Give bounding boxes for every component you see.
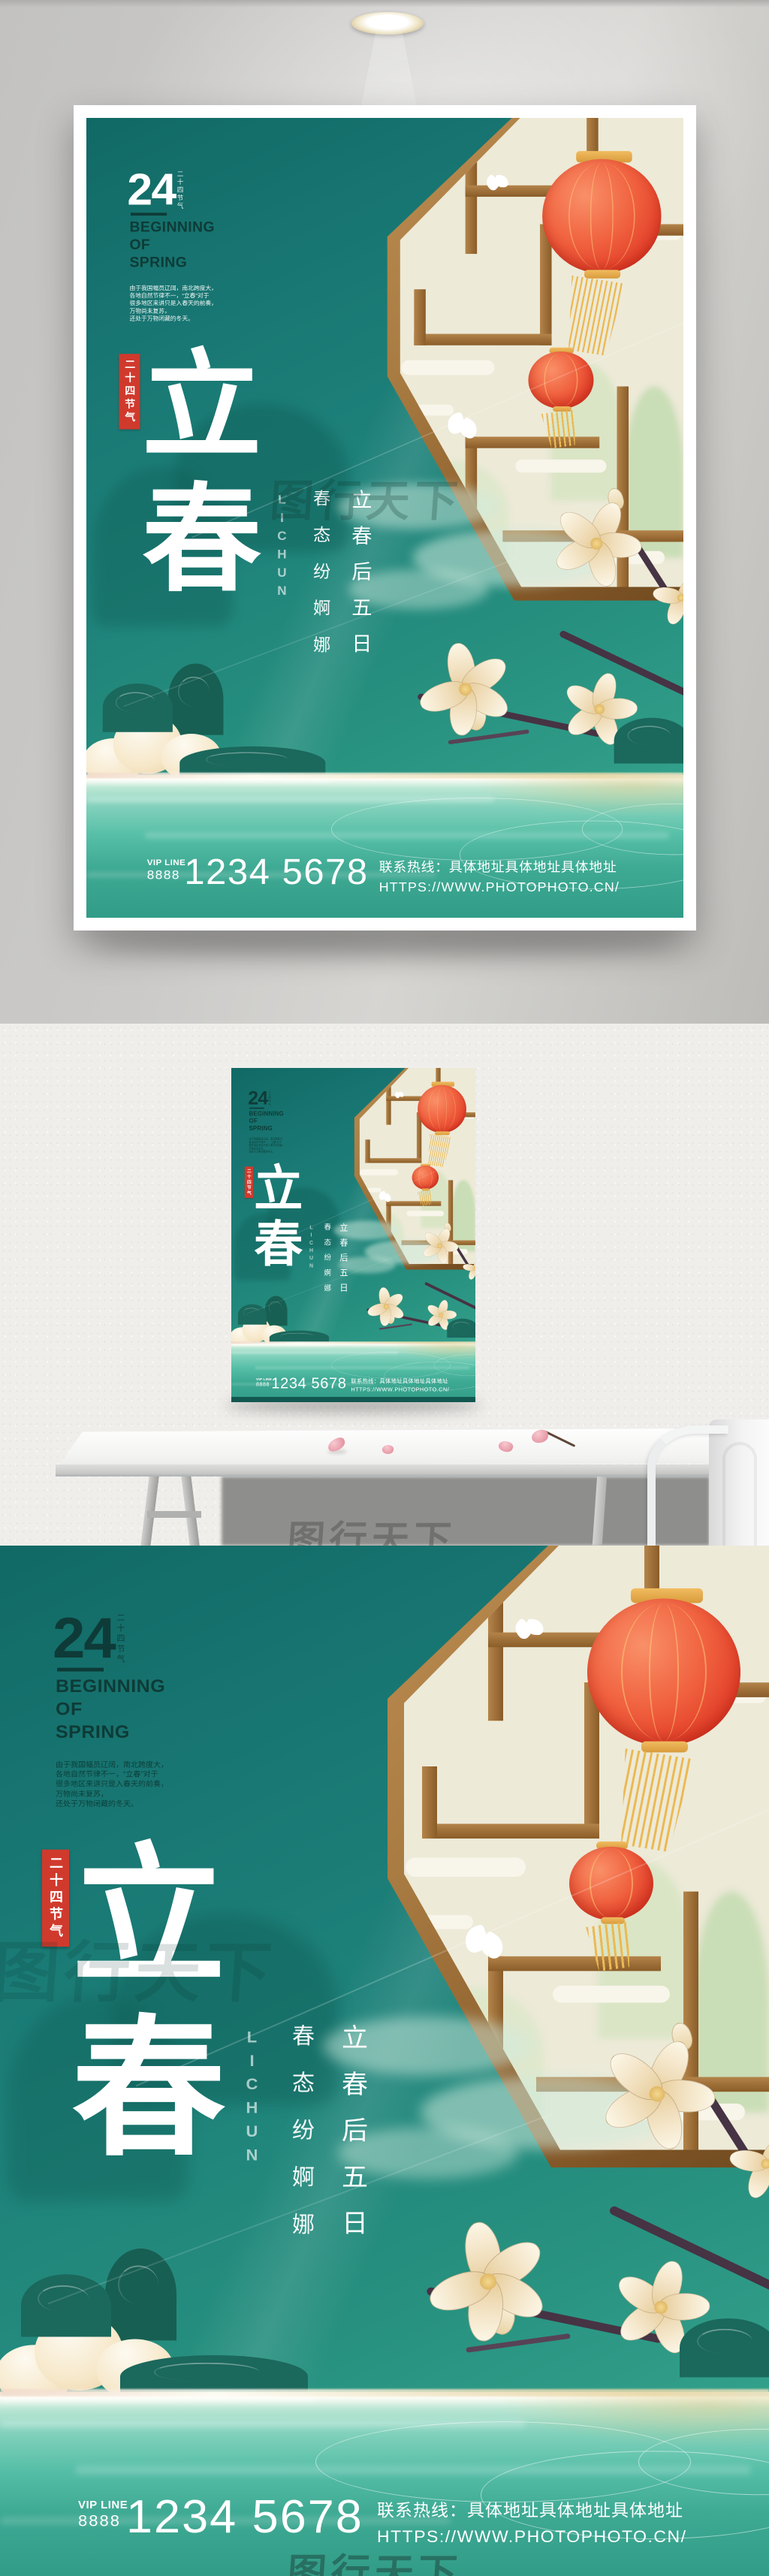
window-cloud [553,1986,670,2003]
shoreline [231,1341,475,1344]
phone-number: 1234 5678 [126,2490,363,2544]
vip-line-block: VIP LINE 8888 [78,2499,128,2529]
lattice-bar [422,1823,599,1838]
title-char-chun: 春 [140,484,264,596]
lichun-pinyin: LICHUN [308,1224,314,1270]
butterfly-icon [445,410,481,442]
lichun-poster: 24 二十四节气 BEGINNING OF SPRING 由于我国幅员辽阔，南北… [231,1068,475,1402]
watermark: 图行天下 [0,1920,279,2015]
lattice-bar [365,1158,421,1163]
window-cloud [360,1169,398,1175]
description-paragraph: 由于我国幅员辽阔，南北跨度大， 各地自然节律不一，“立春”对于 很多地区来讲只是… [249,1138,285,1154]
verse-column-b: 立春后五日 [337,1223,349,1299]
description-paragraph: 由于我国幅员辽阔，南北跨度大， 各地自然节律不一，“立春”对于 很多地区来讲只是… [129,285,216,322]
number-24: 24 [248,1088,267,1107]
white-chair [643,1415,769,1546]
vip-line-number: 8888 [256,1381,272,1387]
contact-block: 联系热线：具体地址具体地址具体地址 HTTPS://WWW.PHOTOPHOTO… [379,856,620,895]
number-24-side-label: 二十四节气 [267,1090,271,1106]
verse-column-b: 立春后五日 [333,2024,372,2256]
stock-preview-image: 24 二十四节气 BEGINNING OF SPRING 由于我国幅员辽阔，南北… [0,0,769,2576]
lichun-poster: 24 二十四节气 BEGINNING OF SPRING 由于我国幅员辽阔，南北… [0,1546,769,2576]
desk-front-edge [56,1464,728,1477]
water [86,775,683,918]
number-24: 24 [127,167,175,211]
vip-line-number: 8888 [147,867,185,881]
lichun-pinyin: LICHUN [242,2028,261,2169]
solar-terms-badge-text: 二十四节气 [122,359,137,424]
solar-terms-badge-text: 二十四节气 [246,1169,252,1196]
mini-poster-bottom-edge [231,1397,475,1402]
lattice-bar [414,334,551,345]
title-char-li: 立 [253,1166,303,1212]
watermark: 图行天下 [285,2541,463,2576]
title-char-chun: 春 [69,2018,228,2161]
description-paragraph: 由于我国幅员辽阔，南北跨度大， 各地自然节律不一，“立春”对于 很多地区来讲只是… [56,1760,168,1809]
vip-line-number: 8888 [78,2511,128,2529]
window-cloud [401,360,494,376]
magnolia-flower [410,2205,567,2358]
red-lantern-large [587,1588,745,1854]
hill [614,718,683,764]
title-english: BEGINNING OF SPRING [56,1675,165,1743]
hotline-address: 联系热线：具体地址具体地址具体地址 [379,856,620,876]
hill [680,2318,769,2377]
desk-leg-crossbar [147,1511,201,1518]
contact-block: 联系热线：具体地址具体地址具体地址 HTTPS://WWW.PHOTOPHOTO… [351,1377,449,1393]
magnolia-flower [361,1282,411,1332]
magnolia-flower [405,629,526,749]
watermark: 图行天下 [268,466,465,529]
shoreline [86,773,683,779]
vip-line-label: VIP LINE [147,858,185,868]
vip-line-block: VIP LINE 8888 [256,1377,272,1387]
shoreline [0,2389,769,2397]
number-24-side-label: 二十四节气 [175,170,184,210]
chair-frame-tube [647,1425,728,1546]
vip-line-label: VIP LINE [78,2499,128,2511]
lattice-bar [365,1139,369,1163]
ceiling-spotlight [351,12,424,35]
solar-terms-badge: 二十四节气 [245,1166,253,1198]
red-lantern-small [527,348,597,451]
website-url: HTTPS://WWW.PHOTOPHOTO.CN/ [351,1386,449,1393]
hotline-address: 联系热线：具体地址具体地址具体地址 [351,1377,449,1385]
hill [447,1319,475,1338]
phone-number: 1234 5678 [184,852,368,893]
ceiling-edge [0,0,769,8]
verse-column-a: 春态纷婀娜 [321,1223,332,1300]
vip-line-block: VIP LINE 8888 [147,858,185,882]
lattice-bar [414,289,426,345]
phone-number: 1234 5678 [271,1374,346,1392]
window-cloud [406,1858,526,1877]
butterfly-icon [461,1922,508,1964]
website-url: HTTPS://WWW.PHOTOPHOTO.CN/ [379,879,620,895]
verse-column-a: 春态纷婀娜 [284,2024,317,2260]
title-char-chun: 春 [253,1221,303,1268]
number-24-side-label: 二十四节气 [114,1613,126,1665]
title-char-li: 立 [140,351,264,462]
poster-mount-full: 24 二十四节气 BEGINNING OF SPRING 由于我国幅员辽阔，南北… [0,1546,769,2576]
lattice-bar [422,1766,437,1838]
window-cloud [407,1211,445,1216]
hotline-address: 联系热线：具体地址具体地址具体地址 [377,2496,687,2521]
water [231,1343,475,1402]
poster-mount-mini: 24 二十四节气 BEGINNING OF SPRING 由于我国幅员辽阔，南北… [231,1068,475,1402]
red-lantern-large [542,151,665,357]
red-lantern-large [418,1081,468,1167]
divider [57,1668,104,1672]
butterfly-icon [378,1190,393,1204]
window-cloud [515,460,606,472]
solar-terms-badge: 二十四节气 [119,354,140,429]
title-english: BEGINNING OF SPRING [249,1110,283,1133]
number-24: 24 [53,1609,115,1666]
title-english: BEGINNING OF SPRING [129,219,214,272]
red-lantern-small [568,1842,658,1974]
divider [131,213,167,216]
divider [249,1108,264,1109]
contact-block: 联系热线：具体地址具体地址具体地址 HTTPS://WWW.PHOTOPHOTO… [377,2496,687,2547]
frame-shadow [98,930,676,957]
